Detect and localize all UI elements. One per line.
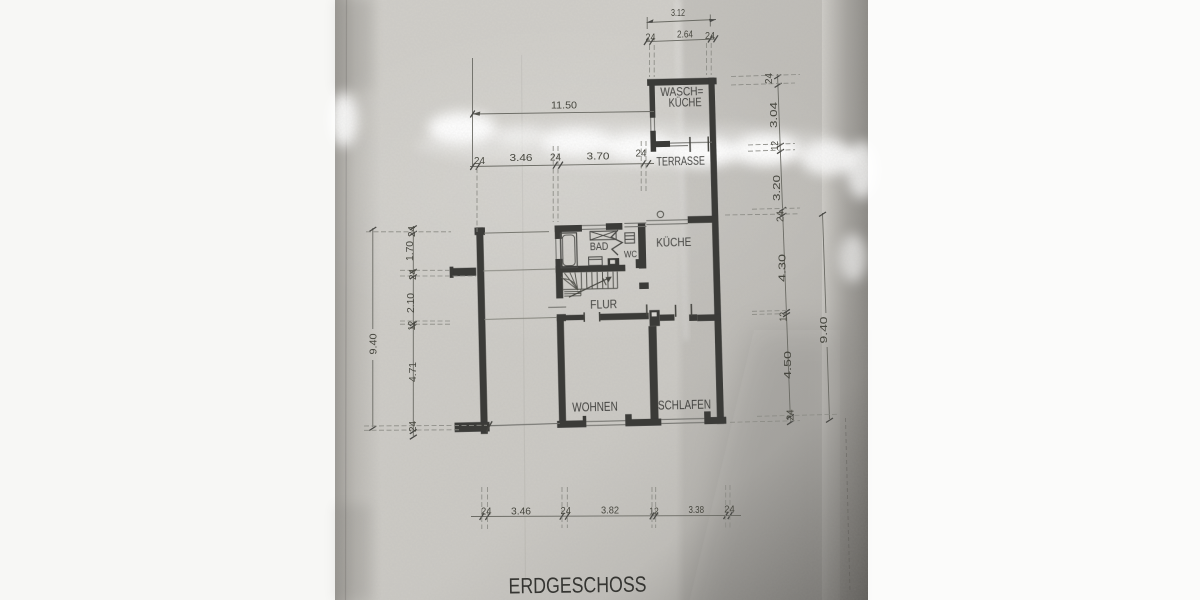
svg-text:3.70: 3.70 — [587, 152, 610, 163]
svg-text:24: 24 — [474, 156, 485, 167]
svg-text:ERDGESCHOSS: ERDGESCHOSS — [508, 572, 646, 599]
svg-text:FLUR: FLUR — [590, 297, 618, 312]
svg-text:12: 12 — [770, 141, 781, 151]
svg-text:3.82: 3.82 — [601, 506, 619, 517]
svg-text:3.46: 3.46 — [511, 506, 531, 517]
svg-text:24: 24 — [646, 33, 656, 44]
svg-text:12: 12 — [649, 507, 659, 518]
svg-text:WC: WC — [624, 249, 637, 260]
svg-text:24: 24 — [764, 73, 775, 84]
svg-text:2.64: 2.64 — [677, 30, 693, 41]
svg-text:3.46: 3.46 — [510, 153, 533, 164]
svg-text:1.70: 1.70 — [405, 241, 416, 261]
svg-text:11.50: 11.50 — [551, 101, 577, 112]
svg-text:WOHNEN: WOHNEN — [572, 400, 618, 415]
svg-text:4.71: 4.71 — [408, 362, 419, 382]
svg-text:24: 24 — [407, 226, 418, 237]
svg-text:24: 24 — [776, 211, 787, 222]
svg-text:4.30: 4.30 — [778, 254, 789, 282]
svg-text:3.38: 3.38 — [689, 505, 705, 516]
svg-text:24: 24 — [561, 506, 572, 517]
svg-text:24: 24 — [724, 505, 735, 516]
svg-text:24: 24 — [408, 421, 419, 432]
svg-text:12: 12 — [407, 321, 418, 331]
svg-text:SCHLAFEN: SCHLAFEN — [658, 398, 711, 413]
svg-text:24: 24 — [636, 149, 647, 160]
svg-text:24: 24 — [550, 153, 561, 164]
svg-text:24: 24 — [786, 409, 797, 420]
svg-text:24: 24 — [705, 31, 715, 42]
svg-text:3.04: 3.04 — [769, 102, 780, 128]
svg-text:24: 24 — [408, 269, 419, 280]
svg-text:3.12: 3.12 — [671, 8, 685, 19]
svg-text:4.50: 4.50 — [783, 351, 794, 379]
svg-text:TERRASSE: TERRASSE — [656, 154, 705, 169]
svg-text:12: 12 — [779, 312, 790, 322]
svg-text:24: 24 — [481, 507, 492, 518]
svg-text:3.20: 3.20 — [772, 175, 783, 201]
svg-text:9.40: 9.40 — [369, 333, 380, 354]
svg-text:KÜCHE: KÜCHE — [656, 235, 691, 250]
svg-text:9.40: 9.40 — [819, 316, 830, 343]
svg-text:2.10: 2.10 — [406, 293, 417, 313]
svg-text:KÜCHE: KÜCHE — [668, 95, 701, 110]
svg-text:BAD: BAD — [590, 241, 609, 253]
